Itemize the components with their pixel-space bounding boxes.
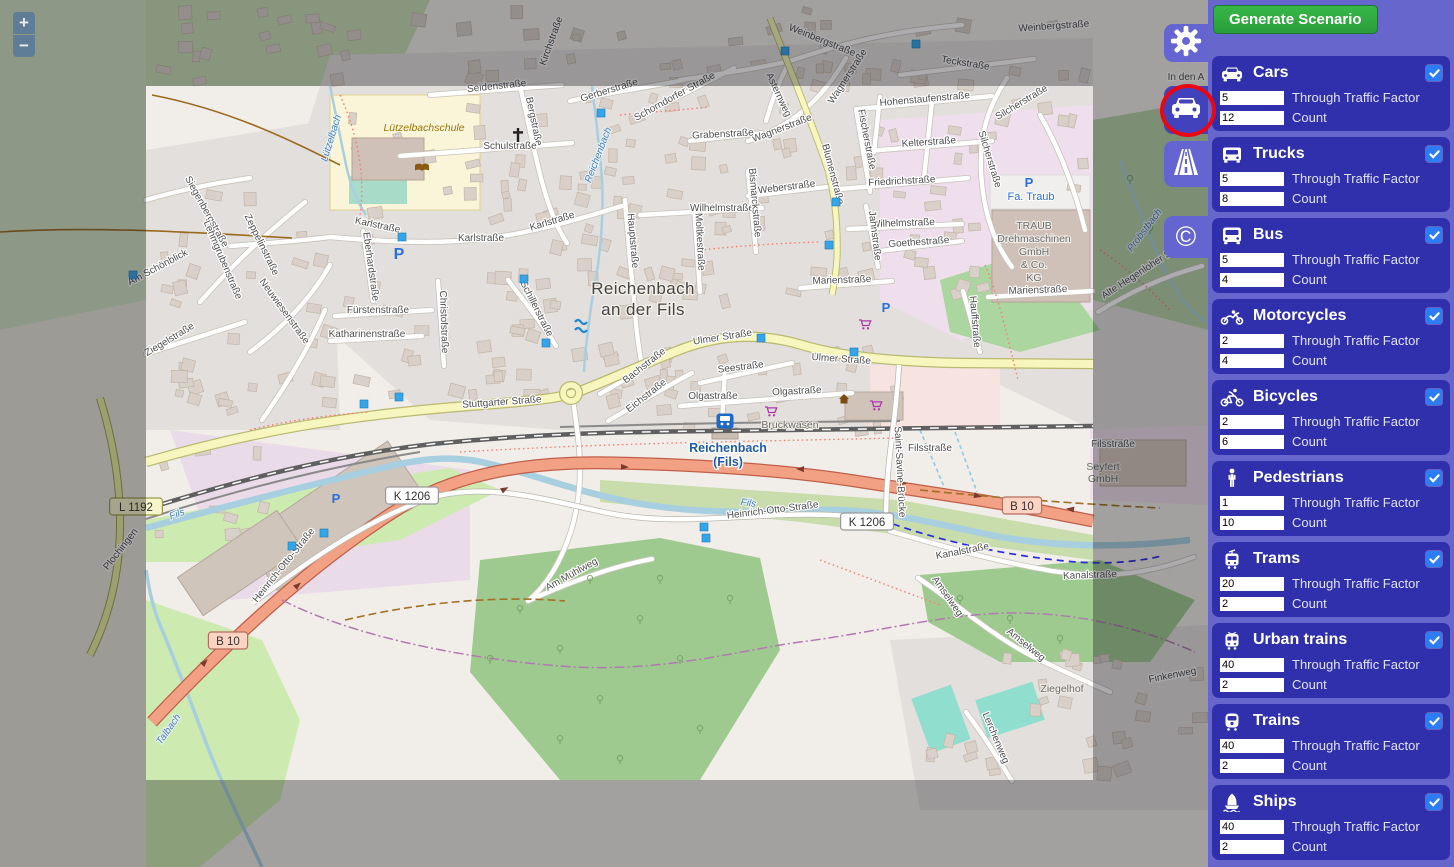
- count-input[interactable]: [1220, 354, 1284, 368]
- motorcycle-icon: [1220, 305, 1246, 327]
- bus-checkbox[interactable]: [1426, 227, 1442, 243]
- station-label: Reichenbach: [689, 441, 767, 455]
- vehicle-card-bicycles: Bicycles Through Traffic Factor Count: [1212, 380, 1450, 455]
- vehicle-title: Pedestrians: [1253, 469, 1426, 487]
- street-label: Filsstraße: [908, 443, 952, 454]
- parking-icon: P: [394, 246, 405, 263]
- motorcycles-checkbox[interactable]: [1426, 308, 1442, 324]
- junction-marker[interactable]: [542, 339, 550, 347]
- car-icon: [1169, 94, 1203, 127]
- ships-checkbox[interactable]: [1426, 794, 1442, 810]
- zoom-in-button[interactable]: +: [13, 12, 35, 34]
- count-input[interactable]: [1220, 759, 1284, 773]
- water-label: Fils: [740, 497, 757, 510]
- parking-icon: P: [332, 491, 341, 506]
- junction-marker[interactable]: [520, 275, 528, 283]
- road-badge: B 10: [1002, 497, 1041, 514]
- road-badge: B 10: [208, 632, 247, 649]
- urban-trains-checkbox[interactable]: [1426, 632, 1442, 648]
- vehicle-card-ships: Ships Through Traffic Factor Count: [1212, 785, 1450, 860]
- street-label: Schulstraße: [483, 141, 537, 152]
- through-traffic-factor-input[interactable]: [1220, 334, 1284, 348]
- vehicle-card-trucks: Trucks Through Traffic Factor Count: [1212, 137, 1450, 212]
- vehicle-title: Ships: [1253, 793, 1426, 811]
- junction-marker[interactable]: [398, 233, 406, 241]
- vehicle-card-trains: Trains Through Traffic Factor Count: [1212, 704, 1450, 779]
- junction-marker[interactable]: [702, 534, 710, 542]
- osm-web-wizard-window: SeidenstraßeBergstraßeGerberstraßeSchorn…: [0, 0, 1454, 867]
- pedestrians-checkbox[interactable]: [1426, 470, 1442, 486]
- trucks-checkbox[interactable]: [1426, 146, 1442, 162]
- bicycles-checkbox[interactable]: [1426, 389, 1442, 405]
- vehicle-cards: Cars Through Traffic Factor Count Trucks…: [1208, 56, 1454, 860]
- parking-label: Fa. Traub: [1007, 191, 1054, 203]
- vehicle-card-motorcycles: Motorcycles Through Traffic Factor Count: [1212, 299, 1450, 374]
- street-label: Wilhelmstraße: [690, 203, 754, 214]
- road-icon: [1168, 146, 1204, 183]
- junction-marker[interactable]: [597, 109, 605, 117]
- poi-label: Drehmaschinen: [997, 233, 1071, 245]
- poi-label: GmbH: [1019, 246, 1049, 258]
- svg-text:B 10: B 10: [216, 636, 240, 648]
- count-input[interactable]: [1220, 192, 1284, 206]
- street-label: Marienstraße: [1008, 284, 1068, 297]
- through-traffic-factor-input[interactable]: [1220, 577, 1284, 591]
- truck-icon: [1220, 143, 1246, 165]
- settings-tab[interactable]: [1164, 24, 1208, 62]
- copyright-tab[interactable]: ©: [1164, 216, 1208, 258]
- through-traffic-factor-input[interactable]: [1220, 415, 1284, 429]
- junction-marker[interactable]: [320, 529, 328, 537]
- school-label: Lützelbachschule: [383, 122, 464, 134]
- vehicle-card-trams: Trams Through Traffic Factor Count: [1212, 542, 1450, 617]
- street-label: Christofstraße: [437, 290, 450, 354]
- vehicles-tab[interactable]: [1164, 86, 1208, 134]
- poi-label: KG: [1026, 272, 1041, 284]
- junction-marker[interactable]: [832, 198, 840, 206]
- street-label: Olgastraße: [688, 391, 738, 402]
- trams-checkbox[interactable]: [1426, 551, 1442, 567]
- poi-label: TRAUB: [1016, 220, 1052, 232]
- vehicle-title: Trams: [1253, 550, 1426, 568]
- vehicle-card-cars: Cars Through Traffic Factor Count: [1212, 56, 1450, 131]
- vehicle-title: Bus: [1253, 226, 1426, 244]
- street-label: Fürstenstraße: [347, 305, 410, 316]
- street-label: Karlstraße: [458, 233, 505, 244]
- trains-checkbox[interactable]: [1426, 713, 1442, 729]
- svg-text:B 10: B 10: [1010, 501, 1034, 513]
- street-label: Katharinenstraße: [329, 329, 406, 340]
- place-label: an der Fils: [601, 300, 685, 319]
- copyright-icon: ©: [1176, 221, 1197, 253]
- junction-marker[interactable]: [850, 348, 858, 356]
- vehicle-card-pedestrians: Pedestrians Through Traffic Factor Count: [1212, 461, 1450, 536]
- through-traffic-factor-input[interactable]: [1220, 253, 1284, 267]
- gear-icon: [1169, 24, 1203, 63]
- svg-text:K 1206: K 1206: [394, 491, 430, 503]
- count-input[interactable]: [1220, 840, 1284, 854]
- vehicle-card-bus: Bus Through Traffic Factor Count: [1212, 218, 1450, 293]
- road-types-tab[interactable]: [1164, 141, 1208, 187]
- urban-train-icon: [1220, 629, 1246, 651]
- count-input[interactable]: [1220, 273, 1284, 287]
- car-icon: [1220, 62, 1246, 84]
- settings-panel: Generate Scenario Cars Through Traffic F…: [1208, 0, 1454, 867]
- through-traffic-factor-input[interactable]: [1220, 658, 1284, 672]
- through-traffic-factor-input[interactable]: [1220, 172, 1284, 186]
- street-label: Wilhelmstraße: [871, 217, 936, 230]
- through-traffic-factor-input[interactable]: [1220, 739, 1284, 753]
- vehicle-title: Urban trains: [1253, 631, 1426, 649]
- tram-icon: [1220, 548, 1246, 570]
- vehicle-title: Motorcycles: [1253, 307, 1426, 325]
- junction-marker[interactable]: [395, 393, 403, 401]
- map-canvas[interactable]: SeidenstraßeBergstraßeGerberstraßeSchorn…: [0, 0, 1208, 867]
- cars-checkbox[interactable]: [1426, 65, 1442, 81]
- station-label: (Fils): [713, 455, 743, 469]
- vehicle-title: Trains: [1253, 712, 1426, 730]
- count-input[interactable]: [1220, 678, 1284, 692]
- count-input[interactable]: [1220, 597, 1284, 611]
- svg-text:K 1206: K 1206: [849, 517, 885, 529]
- vehicle-title: Cars: [1253, 64, 1426, 82]
- road-badge: K 1206: [841, 513, 894, 530]
- junction-marker[interactable]: [288, 542, 296, 550]
- through-traffic-factor-input[interactable]: [1220, 91, 1284, 105]
- count-input[interactable]: [1220, 516, 1284, 530]
- count-input[interactable]: [1220, 111, 1284, 125]
- through-traffic-factor-input[interactable]: [1220, 820, 1284, 834]
- junction-marker[interactable]: [825, 241, 833, 249]
- train-station-icon: [717, 414, 734, 429]
- vehicle-card-urban-trains: Urban trains Through Traffic Factor Coun…: [1212, 623, 1450, 698]
- vehicle-title: Trucks: [1253, 145, 1426, 163]
- junction-marker[interactable]: [700, 523, 708, 531]
- generate-scenario-button[interactable]: Generate Scenario: [1213, 5, 1378, 34]
- bus-icon: [1220, 224, 1246, 246]
- count-input[interactable]: [1220, 435, 1284, 449]
- poi-label: Ziegelhof: [1040, 683, 1083, 695]
- street-label: Marienstraße: [812, 274, 872, 287]
- pedestrian-icon: [1220, 467, 1246, 489]
- junction-marker[interactable]: [360, 400, 368, 408]
- road-badge: K 1206: [386, 487, 439, 504]
- bicycle-icon: [1220, 386, 1246, 408]
- poi-label: & Co.: [1021, 259, 1047, 271]
- ship-icon: [1220, 791, 1246, 813]
- zoom-out-button[interactable]: −: [13, 35, 35, 57]
- junction-marker[interactable]: [757, 334, 765, 342]
- parking-icon: P: [1025, 175, 1034, 190]
- place-label: Reichenbach: [591, 279, 695, 298]
- train-icon: [1220, 710, 1246, 732]
- vehicle-title: Bicycles: [1253, 388, 1426, 406]
- parking-icon: P: [882, 300, 891, 315]
- through-traffic-factor-input[interactable]: [1220, 496, 1284, 510]
- poi-label: Bruckwasen: [761, 419, 818, 431]
